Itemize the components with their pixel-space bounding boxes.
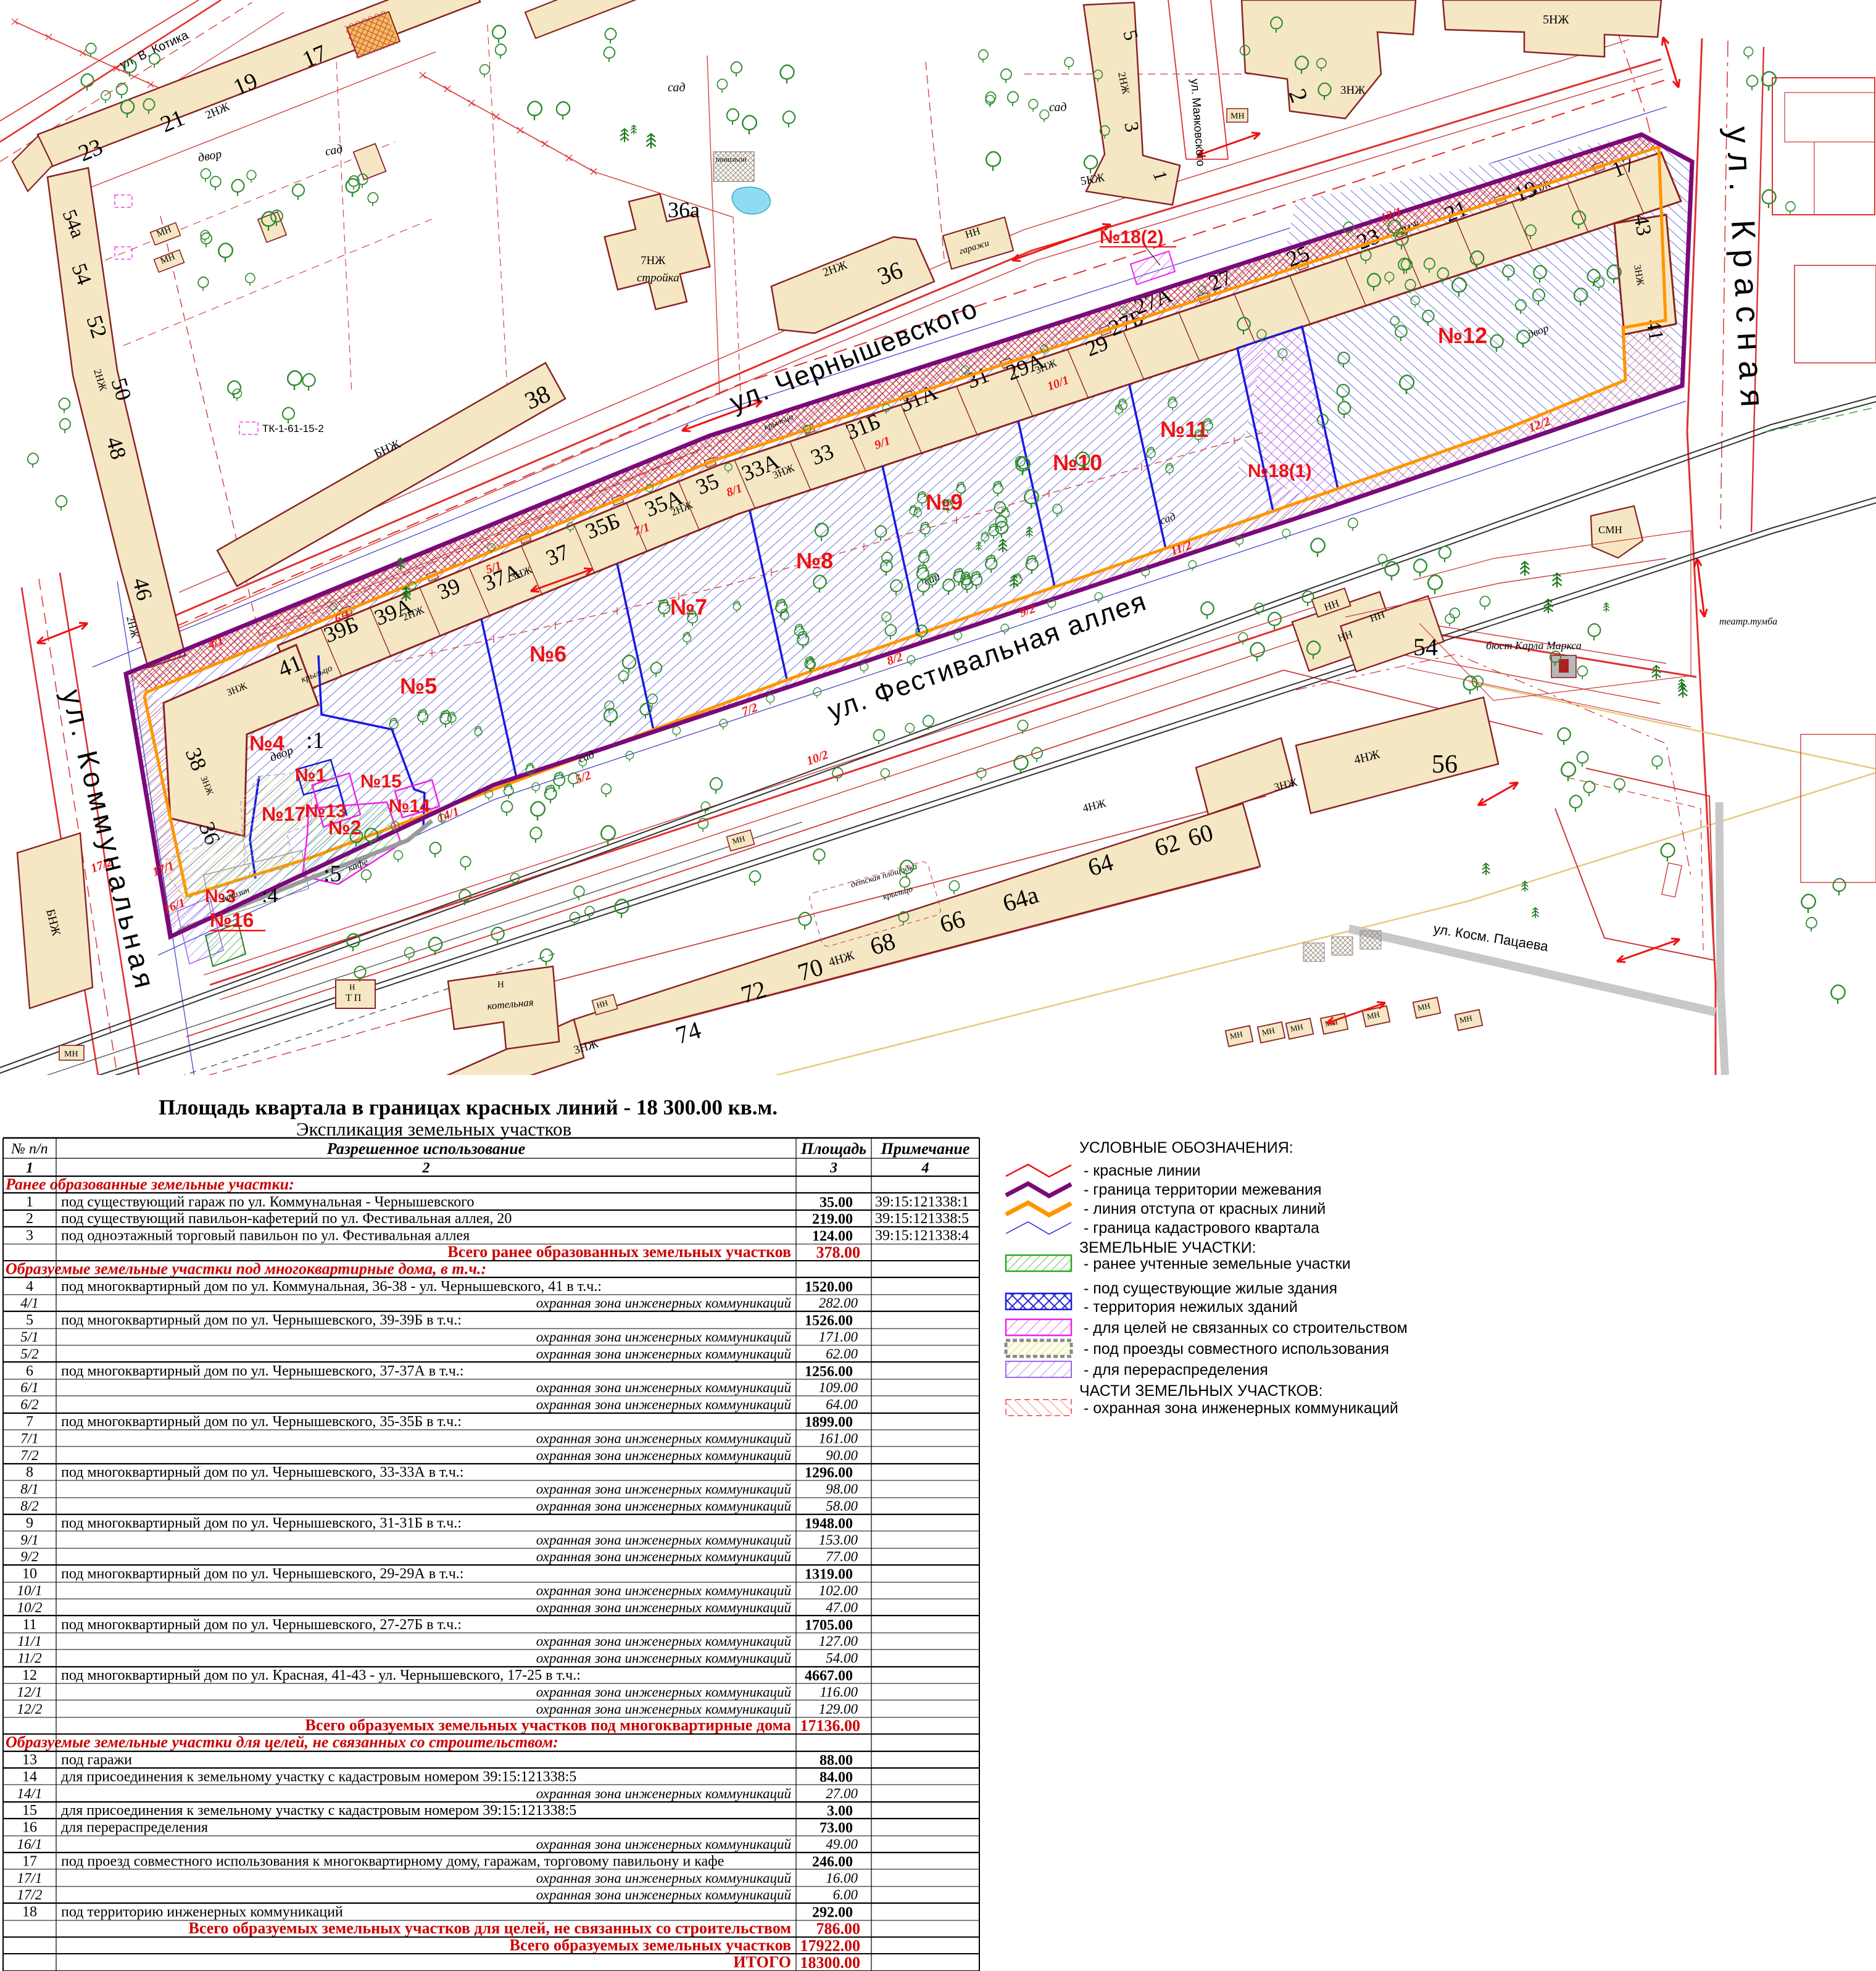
svg-text:МН: МН <box>1231 112 1245 121</box>
svg-text:охранная зона инженерных комму: охранная зона инженерных коммуникаций <box>536 1786 792 1801</box>
svg-text::5: :5 <box>323 861 342 887</box>
svg-text:- граница кадастрового квартал: - граница кадастрового квартала <box>1084 1219 1319 1237</box>
svg-text:охранная зона инженерных комму: охранная зона инженерных коммуникаций <box>536 1684 792 1699</box>
svg-text:12: 12 <box>22 1667 37 1683</box>
svg-text:3: 3 <box>26 1228 33 1244</box>
svg-text:8/2: 8/2 <box>20 1498 38 1514</box>
svg-text:Всего образуемых земельных уча: Всего образуемых земельных участков для … <box>189 1919 792 1937</box>
svg-text:УСЛОВНЫЕ ОБОЗНАЧЕНИЯ:: УСЛОВНЫЕ ОБОЗНАЧЕНИЯ: <box>1079 1139 1293 1156</box>
svg-text:5НЖ: 5НЖ <box>1543 13 1569 27</box>
svg-text:1256.00: 1256.00 <box>805 1364 853 1380</box>
svg-text:под многоквартирный дом по ул.: под многоквартирный дом по ул. Чернышевс… <box>61 1414 462 1430</box>
svg-text:6/2: 6/2 <box>20 1397 38 1413</box>
svg-text:под многоквартирный дом по ул.: под многоквартирный дом по ул. Красная, … <box>61 1667 581 1683</box>
svg-text:27.00: 27.00 <box>826 1786 858 1801</box>
svg-text:9/2: 9/2 <box>20 1549 38 1564</box>
svg-text:5/2: 5/2 <box>20 1346 38 1361</box>
svg-text:под многоквартирный дом по ул.: под многоквартирный дом по ул. Чернышевс… <box>61 1464 463 1480</box>
svg-text:для присоединения к земельному: для присоединения к земельному участку с… <box>61 1769 576 1785</box>
svg-text:1: 1 <box>26 1194 33 1210</box>
svg-text:Образуемые земельные участки п: Образуемые земельные участки под многокв… <box>6 1259 486 1277</box>
svg-text:1526.00: 1526.00 <box>805 1313 853 1329</box>
svg-text:- линия отступа от красных лин: - линия отступа от красных линий <box>1084 1200 1326 1218</box>
svg-text:35.00: 35.00 <box>820 1195 853 1211</box>
svg-text:под многоквартирный дом по ул.: под многоквартирный дом по ул. Чернышевс… <box>61 1566 463 1582</box>
svg-text:171.00: 171.00 <box>819 1329 858 1345</box>
svg-text:- для целей не связанных со ст: - для целей не связанных со строительств… <box>1084 1319 1408 1337</box>
svg-text:охранная зона инженерных комму: охранная зона инженерных коммуникаций <box>536 1887 792 1903</box>
svg-text:- граница территории межевания: - граница территории межевания <box>1084 1181 1322 1198</box>
svg-text:охранная зона инженерных комму: охранная зона инженерных коммуникаций <box>536 1583 792 1598</box>
svg-text:62.00: 62.00 <box>826 1346 858 1361</box>
svg-text:39:15:121338:5: 39:15:121338:5 <box>875 1211 969 1227</box>
svg-text:11/2: 11/2 <box>17 1651 41 1666</box>
svg-text:СМН: СМН <box>1598 524 1622 536</box>
svg-text:№17: №17 <box>262 803 305 825</box>
svg-text:6/1: 6/1 <box>20 1380 38 1395</box>
svg-text:охранная зона инженерных комму: охранная зона инженерных коммуникаций <box>536 1329 792 1345</box>
svg-text:стройка: стройка <box>637 272 679 284</box>
svg-text:102.00: 102.00 <box>819 1583 858 1598</box>
svg-text:под одноэтажный торговый павил: под одноэтажный торговый павильон по ул.… <box>61 1228 470 1244</box>
svg-text:378.00: 378.00 <box>816 1243 861 1261</box>
svg-text:6.00: 6.00 <box>833 1887 858 1903</box>
svg-text:Примечание: Примечание <box>881 1140 970 1158</box>
svg-text::4: :4 <box>262 884 278 907</box>
svg-text:17/1: 17/1 <box>17 1870 43 1886</box>
svg-text:№15: №15 <box>360 771 402 792</box>
svg-text:9: 9 <box>26 1515 33 1531</box>
svg-text:17/2: 17/2 <box>17 1887 43 1903</box>
svg-text:90.00: 90.00 <box>826 1448 858 1463</box>
svg-text:58.00: 58.00 <box>826 1498 858 1514</box>
svg-text:1319.00: 1319.00 <box>805 1567 853 1583</box>
svg-text:под территорию инженерных комм: под территорию инженерных коммуникаций <box>61 1904 343 1920</box>
svg-text:Ранее образованные земельные у: Ранее образованные земельные участки: <box>5 1175 294 1193</box>
svg-text:сад: сад <box>668 81 685 94</box>
svg-text:охранная зона инженерных комму: охранная зона инженерных коммуникаций <box>536 1532 792 1548</box>
svg-text:16: 16 <box>22 1820 37 1836</box>
svg-text:77.00: 77.00 <box>826 1549 858 1564</box>
svg-text:под многоквартирный дом по ул.: под многоквартирный дом по ул. Чернышевс… <box>61 1515 462 1531</box>
svg-text:охранная зона инженерных комму: охранная зона инженерных коммуникаций <box>536 1430 792 1446</box>
svg-text:№18(2): №18(2) <box>1100 227 1163 247</box>
svg-text:- территория нежилых зданий: - территория нежилых зданий <box>1084 1298 1298 1316</box>
svg-text:36а: 36а <box>668 197 700 222</box>
svg-text:56: 56 <box>1432 750 1458 779</box>
svg-text:4667.00: 4667.00 <box>805 1668 853 1684</box>
svg-text:охранная зона инженерных комму: охранная зона инженерных коммуникаций <box>536 1549 792 1564</box>
svg-text:219.00: 219.00 <box>812 1211 853 1227</box>
svg-text:3: 3 <box>829 1160 837 1176</box>
svg-text:Н: Н <box>349 982 355 992</box>
svg-text:ТК-1-61-15-2: ТК-1-61-15-2 <box>262 423 324 434</box>
svg-text:15: 15 <box>22 1803 37 1819</box>
svg-text:ЧАСТИ ЗЕМЕЛЬНЫХ УЧАСТКОВ:: ЧАСТИ ЗЕМЕЛЬНЫХ УЧАСТКОВ: <box>1079 1382 1323 1400</box>
svg-text:охранная зона инженерных комму: охранная зона инженерных коммуникаций <box>536 1600 792 1615</box>
svg-text:124.00: 124.00 <box>812 1229 853 1245</box>
svg-text:2: 2 <box>26 1211 33 1227</box>
svg-text:3.00: 3.00 <box>827 1803 853 1819</box>
svg-text:сад: сад <box>1049 101 1066 114</box>
svg-text:1948.00: 1948.00 <box>805 1516 853 1532</box>
svg-text:№12: №12 <box>1438 323 1487 348</box>
svg-text:54: 54 <box>1413 633 1438 661</box>
svg-text:охранная зона инженерных комму: охранная зона инженерных коммуникаций <box>536 1651 792 1666</box>
svg-text:4/1: 4/1 <box>20 1295 38 1311</box>
svg-text:7: 7 <box>26 1414 33 1430</box>
svg-text:Всего ранее образованных земел: Всего ранее образованных земельных участ… <box>447 1243 791 1261</box>
svg-text:- красные линии: - красные линии <box>1084 1162 1200 1179</box>
svg-text:Экспликация земельных участков: Экспликация земельных участков <box>296 1118 571 1140</box>
svg-text:88.00: 88.00 <box>820 1753 853 1769</box>
svg-text:№8: №8 <box>796 548 833 573</box>
svg-text:17922.00: 17922.00 <box>800 1936 861 1954</box>
svg-text:охранная зона инженерных комму: охранная зона инженерных коммуникаций <box>536 1836 792 1852</box>
svg-text:Всего образуемых земельных уча: Всего образуемых земельных участков <box>510 1936 791 1954</box>
svg-text:1705.00: 1705.00 <box>805 1617 853 1633</box>
svg-text:под многоквартирный дом по ул.: под многоквартирный дом по ул. Чернышевс… <box>61 1617 462 1633</box>
svg-text:Площадь квартала в границах кр: Площадь квартала в границах красных лини… <box>159 1095 778 1119</box>
svg-text:Всего образуемых земельных уча: Всего образуемых земельных участков под … <box>305 1716 791 1734</box>
svg-text:16/1: 16/1 <box>17 1836 43 1852</box>
svg-text:№2: №2 <box>328 816 361 839</box>
svg-text:под существующий гараж по ул.: под существующий гараж по ул. Коммунальн… <box>61 1194 474 1210</box>
svg-text:- под проезды совместного испо: - под проезды совместного использования <box>1084 1340 1389 1358</box>
svg-text:под проезд совместного использ: под проезд совместного использования к м… <box>61 1853 724 1869</box>
svg-text:16.00: 16.00 <box>826 1870 858 1886</box>
svg-text:13: 13 <box>22 1752 37 1768</box>
svg-text:73.00: 73.00 <box>820 1820 853 1836</box>
svg-text:№16: №16 <box>210 909 254 931</box>
svg-text:282.00: 282.00 <box>819 1295 858 1311</box>
svg-text:8/1: 8/1 <box>20 1482 38 1497</box>
svg-text:охранная зона инженерных комму: охранная зона инженерных коммуникаций <box>536 1448 792 1463</box>
svg-text:292.00: 292.00 <box>812 1905 853 1921</box>
svg-text:17: 17 <box>22 1853 37 1869</box>
svg-text:охранная зона инженерных комму: охранная зона инженерных коммуникаций <box>536 1701 792 1717</box>
svg-text:охранная зона инженерных комму: охранная зона инженерных коммуникаций <box>536 1295 792 1311</box>
svg-text:- под существующие жилые здани: - под существующие жилые здания <box>1084 1280 1337 1297</box>
svg-text:под существующий павильон-кафе: под существующий павильон-кафетерий по у… <box>61 1211 512 1227</box>
svg-text:7/2: 7/2 <box>20 1448 38 1463</box>
svg-text:54.00: 54.00 <box>826 1651 858 1666</box>
svg-text:12/2: 12/2 <box>17 1701 43 1717</box>
svg-text:павильон: павильон <box>716 154 747 164</box>
svg-text:- охранная зона инженерных ком: - охранная зона инженерных коммуникаций <box>1084 1400 1398 1417</box>
svg-text:14/1: 14/1 <box>17 1786 43 1801</box>
svg-text:1899.00: 1899.00 <box>805 1414 853 1430</box>
svg-text:10: 10 <box>22 1566 37 1582</box>
svg-text:- для перераспределения: - для перераспределения <box>1084 1361 1268 1379</box>
svg-text:под многоквартирный дом по ул.: под многоквартирный дом по ул. Чернышевс… <box>61 1363 463 1379</box>
svg-text:64.00: 64.00 <box>826 1397 858 1413</box>
svg-text:39:15:121338:1: 39:15:121338:1 <box>875 1194 969 1210</box>
svg-text:Т П: Т П <box>346 993 362 1003</box>
svg-text:охранная зона инженерных комму: охранная зона инженерных коммуникаций <box>536 1346 792 1361</box>
svg-text:ЗЕМЕЛЬНЫЕ УЧАСТКИ:: ЗЕМЕЛЬНЫЕ УЧАСТКИ: <box>1079 1239 1256 1256</box>
svg-text:3НЖ: 3НЖ <box>1340 84 1366 97</box>
svg-text:84.00: 84.00 <box>820 1769 853 1785</box>
svg-text:охранная зона инженерных комму: охранная зона инженерных коммуникаций <box>536 1397 792 1413</box>
svg-text:5: 5 <box>26 1313 33 1329</box>
svg-text:39:15:121338:4: 39:15:121338:4 <box>875 1228 969 1244</box>
svg-text:1520.00: 1520.00 <box>805 1279 853 1295</box>
svg-text:театр.тумба: театр.тумба <box>1719 616 1777 627</box>
svg-text:5/1: 5/1 <box>20 1329 38 1345</box>
svg-text:11: 11 <box>22 1617 36 1633</box>
svg-text:Площадь: Площадь <box>800 1140 866 1158</box>
svg-text:бюст Карла Маркса: бюст Карла Маркса <box>1486 639 1582 652</box>
svg-text:161.00: 161.00 <box>819 1430 858 1446</box>
svg-text:под гаражи: под гаражи <box>61 1752 132 1768</box>
svg-text:№14: №14 <box>389 796 430 816</box>
svg-text:153.00: 153.00 <box>819 1532 858 1548</box>
svg-text:для присоединения к земельному: для присоединения к земельному участку с… <box>61 1803 576 1819</box>
svg-text:10/1: 10/1 <box>17 1583 43 1598</box>
svg-text:Разрешенное использование: Разрешенное использование <box>326 1140 525 1158</box>
svg-text:Н: Н <box>497 980 504 990</box>
svg-text:12/1: 12/1 <box>17 1684 43 1699</box>
svg-text:9/1: 9/1 <box>20 1532 38 1548</box>
svg-text:охранная зона инженерных комму: охранная зона инженерных коммуникаций <box>536 1498 792 1514</box>
svg-text:под многоквартирный дом по ул.: под многоквартирный дом по ул. Чернышевс… <box>61 1313 462 1329</box>
svg-text:7НЖ: 7НЖ <box>641 254 666 267</box>
svg-text:- ранее учтенные земельные уча: - ранее учтенные земельные участки <box>1084 1255 1351 1272</box>
svg-text:129.00: 129.00 <box>819 1701 858 1717</box>
svg-text:43: 43 <box>1629 213 1655 238</box>
svg-text:49.00: 49.00 <box>826 1836 858 1852</box>
svg-text:10/2: 10/2 <box>17 1600 43 1615</box>
svg-text:786.00: 786.00 <box>816 1920 861 1938</box>
svg-text:2: 2 <box>422 1160 430 1176</box>
svg-text:охранная зона инженерных комму: охранная зона инженерных коммуникаций <box>536 1482 792 1497</box>
svg-text:4: 4 <box>921 1160 929 1176</box>
svg-text:1: 1 <box>26 1160 33 1176</box>
svg-text:18300.00: 18300.00 <box>800 1954 861 1971</box>
svg-text:МН: МН <box>64 1050 78 1059</box>
svg-text:116.00: 116.00 <box>820 1684 858 1699</box>
svg-text:246.00: 246.00 <box>812 1854 853 1870</box>
svg-text:ИТОГО: ИТОГО <box>733 1953 791 1971</box>
svg-text:47.00: 47.00 <box>826 1600 858 1615</box>
svg-text:1296.00: 1296.00 <box>805 1465 853 1481</box>
svg-text:№5: №5 <box>400 673 437 699</box>
svg-text:98.00: 98.00 <box>826 1482 858 1497</box>
svg-text:7/1: 7/1 <box>20 1430 38 1446</box>
svg-text:18: 18 <box>22 1904 37 1920</box>
svg-text:Образуемые земельные участки д: Образуемые земельные участки для целей, … <box>6 1733 558 1751</box>
svg-text:6: 6 <box>26 1363 33 1379</box>
svg-text:4: 4 <box>26 1279 33 1295</box>
svg-text:8: 8 <box>26 1464 33 1480</box>
svg-text:охранная зона инженерных комму: охранная зона инженерных коммуникаций <box>536 1633 792 1649</box>
svg-text:под многоквартирный дом по ул.: под многоквартирный дом по ул. Коммуналь… <box>61 1279 602 1295</box>
svg-text:№6: №6 <box>529 641 567 666</box>
svg-text:14: 14 <box>22 1769 37 1785</box>
svg-text:охранная зона инженерных комму: охранная зона инженерных коммуникаций <box>536 1870 792 1886</box>
svg-text:11/1: 11/1 <box>17 1633 41 1649</box>
svg-text:охранная зона инженерных комму: охранная зона инженерных коммуникаций <box>536 1380 792 1395</box>
svg-text:№1: №1 <box>295 765 326 786</box>
svg-text:№ п/п: № п/п <box>10 1141 48 1157</box>
svg-text:109.00: 109.00 <box>819 1380 858 1395</box>
svg-text:для перераспределения: для перераспределения <box>61 1820 208 1836</box>
svg-text:127.00: 127.00 <box>819 1633 858 1649</box>
svg-text:17136.00: 17136.00 <box>800 1717 861 1735</box>
svg-text:№18(1): №18(1) <box>1248 461 1311 481</box>
svg-text::1: :1 <box>306 728 325 753</box>
